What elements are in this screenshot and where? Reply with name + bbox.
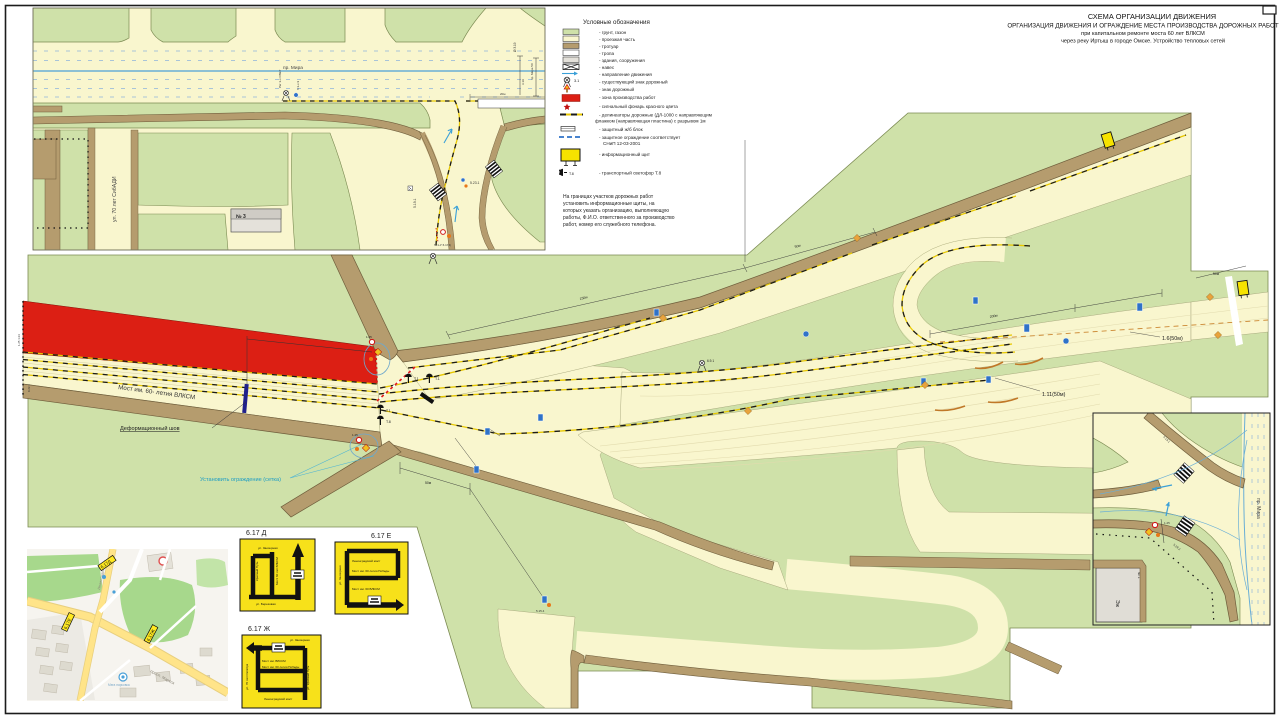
svg-text:3.1: 3.1 — [574, 79, 579, 83]
svg-text:Условные обозначения: Условные обозначения — [583, 19, 650, 26]
svg-text:- сигнальный фонарь красного ц: - сигнальный фонарь красного цвета — [599, 103, 678, 109]
svg-text:- транспортный светофор Т.8: - транспортный светофор Т.8 — [599, 170, 662, 176]
svg-text:6 3-х 9: 6 3-х 9 — [296, 80, 300, 90]
svg-text:1.11(50м): 1.11(50м) — [1042, 392, 1066, 398]
svg-text:ОРГАНИЗАЦИЯ ДВИЖЕНИЯ И ОГРАЖДЕ: ОРГАНИЗАЦИЯ ДВИЖЕНИЯ И ОГРАЖДЕНИЕ МЕСТА … — [1007, 23, 1278, 30]
svg-text:- тротуар: - тротуар — [599, 44, 619, 49]
svg-text:Деформационный шов: Деформационный шов — [120, 425, 180, 432]
svg-text:Мост им. ВЛКСМ: Мост им. ВЛКСМ — [262, 659, 286, 663]
svg-text:Установить ограждение (сетка): Установить ограждение (сетка) — [200, 477, 281, 483]
svg-text:- делинеаторы дорожные (ДЛ-100: - делинеаторы дорожные (ДЛ-1000 с направ… — [599, 113, 712, 118]
svg-text:- навес: - навес — [599, 65, 615, 70]
svg-text:№1-У 6.17Д: №1-У 6.17Д — [434, 243, 451, 247]
svg-text:5.15.4: 5.15.4 — [536, 609, 545, 613]
svg-text:при капитальном ремонте моста: при капитальном ремонте моста 60 лет ВЛК… — [1081, 31, 1205, 37]
svg-text:- тропа: - тропа — [599, 51, 615, 56]
svg-text:через реку Иртыш в городе Омск: через реку Иртыш в городе Омске. Устройс… — [1061, 38, 1225, 45]
svg-text:флажком (направляющая пластина: флажком (направляющая пластина) с разрыв… — [595, 119, 706, 124]
svg-text:Т.1: Т.1 — [386, 409, 391, 413]
svg-text:Мост им. 60 летия Победы: Мост им. 60 летия Победы — [262, 665, 299, 669]
svg-text:- грунт, газон: - грунт, газон — [599, 30, 627, 35]
svg-text:- информационный щит: - информационный щит — [599, 151, 651, 157]
svg-text:Эж: Эж — [1114, 600, 1120, 608]
svg-text:Т.1: Т.1 — [435, 377, 440, 381]
svg-text:Ленинградский мост: Ленинградский мост — [352, 559, 381, 563]
svg-text:3.19: 3.19 — [521, 79, 525, 85]
svg-text:20м: 20м — [500, 92, 505, 96]
svg-text:6.17 Д: 6.17 Д — [246, 530, 267, 537]
svg-text:Т.8: Т.8 — [386, 420, 391, 424]
svg-text:6.17 Е: 6.17 Е — [371, 533, 392, 540]
svg-text:Мост им. 60 летия Победы: Мост им. 60 летия Победы — [352, 569, 389, 573]
svg-text:6.17 Ж: 6.17 Ж — [248, 626, 271, 633]
svg-text:которых указать организацию, в: которых указать организацию, выполняющую — [563, 208, 669, 214]
svg-text:8.22.1: 8.22.1 — [27, 384, 31, 392]
svg-text:пр. Мира: пр. Мира — [283, 65, 303, 71]
svg-text:- направление движения: - направление движения — [599, 72, 652, 77]
svg-text:ул. Красный Путь: ул. Красный Путь — [306, 665, 310, 690]
svg-text:Рег 3-х СВЕТ: Рег 3-х СВЕТ — [278, 69, 282, 88]
svg-text:Мега парковка: Мега парковка — [108, 683, 130, 687]
svg-text:- знак дорожный: - знак дорожный — [599, 86, 634, 92]
svg-text:1.25: 1.25 — [352, 433, 358, 437]
svg-text:ул. 70 лет СибАДИ: ул. 70 лет СибАДИ — [112, 176, 118, 222]
svg-text:5.23.1: 5.23.1 — [470, 181, 480, 185]
svg-text:1.6(50м): 1.6(50м) — [1162, 336, 1183, 342]
svg-text:ул. Заозерная: ул. Заозерная — [338, 565, 342, 585]
svg-text:50м: 50м — [425, 481, 432, 485]
svg-text:работ, номер его служебного те: работ, номер его служебного телефона. — [563, 222, 656, 228]
svg-text:работы, Ф.И.О. ответственного: работы, Ф.И.О. ответственного за произво… — [563, 215, 675, 221]
svg-text:пр. Мира 50: пр. Мира 50 — [530, 63, 534, 80]
svg-text:ул. 70 лет Октября: ул. 70 лет Октября — [245, 663, 249, 690]
svg-text:установить информационные щиты: установить информационные щиты, на — [563, 201, 655, 207]
svg-text:1.25 1.34: 1.25 1.34 — [17, 334, 21, 346]
svg-text:Мост 60 лет ВЛКСМ: Мост 60 лет ВЛКСМ — [275, 557, 279, 585]
svg-text:ул. Березовая: ул. Березовая — [256, 602, 276, 606]
svg-text:Красный Путь: Красный Путь — [255, 561, 259, 581]
svg-text:1.25: 1.25 — [366, 335, 372, 339]
svg-text:Т.1: Т.1 — [414, 377, 419, 381]
svg-text:пр. Мира: пр. Мира — [1255, 498, 1261, 519]
svg-text:- проезжая часть: - проезжая часть — [599, 37, 636, 42]
svg-text:Ленинградский мост: Ленинградский мост — [264, 697, 293, 701]
svg-text:Ø 3.19: Ø 3.19 — [513, 42, 517, 52]
svg-text:5.19.1: 5.19.1 — [413, 198, 417, 208]
svg-text:- защитный ж/б блок: - защитный ж/б блок — [599, 126, 644, 132]
svg-text:- здания, сооружения: - здания, сооружения — [599, 58, 645, 63]
svg-text:1.25: 1.25 — [1164, 521, 1170, 525]
svg-text:- существующий знак дорожный: - существующий знак дорожный — [599, 79, 668, 85]
svg-text:Т.8: Т.8 — [569, 172, 574, 176]
svg-text:50м: 50м — [1213, 272, 1220, 276]
svg-text:- защитное ограждение соответс: - защитное ограждение соответствует — [599, 135, 681, 140]
svg-text:№ 3: № 3 — [236, 214, 246, 220]
svg-text:На границах участков дорожных: На границах участков дорожных работ — [563, 194, 654, 200]
svg-text:ул. Заозерная: ул. Заозерная — [258, 546, 278, 550]
svg-text:Мост им. 60 ВЛКСМ: Мост им. 60 ВЛКСМ — [352, 587, 380, 591]
svg-text:СХЕМА ОРГАНИЗАЦИИ ДВИЖЕНИЯ: СХЕМА ОРГАНИЗАЦИИ ДВИЖЕНИЯ — [1088, 12, 1216, 21]
svg-text:СНиП 12-03-2001: СНиП 12-03-2001 — [603, 141, 641, 146]
svg-text:- зона производства работ: - зона производства работ — [599, 95, 656, 100]
svg-text:6.9.1: 6.9.1 — [707, 359, 714, 363]
svg-text:ул. Заозерная: ул. Заозерная — [290, 638, 310, 642]
